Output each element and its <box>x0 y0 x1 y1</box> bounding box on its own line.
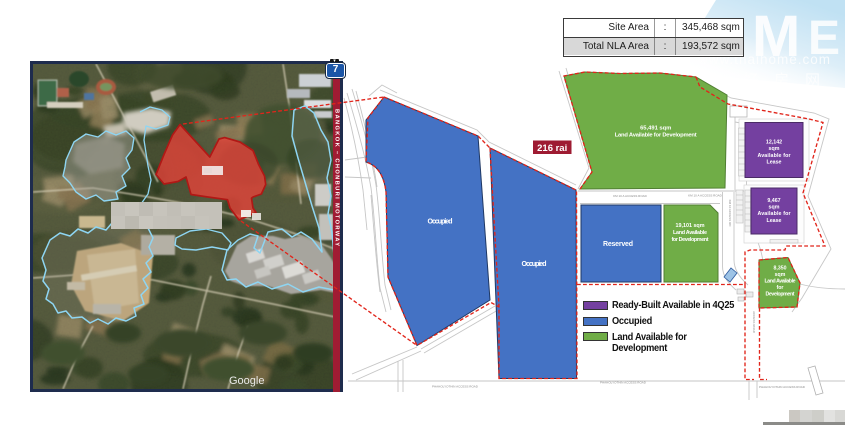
svg-text:Occupied: Occupied <box>428 219 453 226</box>
svg-text:sqm: sqm <box>769 205 780 211</box>
svg-text:KM 10 ACCESS RD: KM 10 ACCESS RD <box>728 200 732 228</box>
svg-text:PHAHOLYOTHIN ACCESS ROAD: PHAHOLYOTHIN ACCESS ROAD <box>432 385 479 389</box>
svg-text:Land Available: Land Available <box>673 230 707 236</box>
svg-text:65,491 sqm: 65,491 sqm <box>640 126 671 132</box>
svg-text:ACCESS ROAD: ACCESS ROAD <box>752 311 756 334</box>
svg-text:Reserved: Reserved <box>603 241 633 248</box>
svg-text:国好房网: 国好房网 <box>712 72 836 89</box>
svg-text:Development: Development <box>766 292 795 298</box>
svg-text:Occupied: Occupied <box>522 261 547 268</box>
svg-text:sqm: sqm <box>775 272 786 278</box>
svg-text:for Development: for Development <box>672 237 709 243</box>
svg-text:KM 10 A ACCESS ROAD: KM 10 A ACCESS ROAD <box>688 194 723 198</box>
svg-text:KM 10 A ACCESS ROAD: KM 10 A ACCESS ROAD <box>613 194 648 198</box>
svg-text:PHAHOLYOTHIN ACCESS ROAD: PHAHOLYOTHIN ACCESS ROAD <box>759 385 806 389</box>
svg-text:Available for: Available for <box>758 153 791 159</box>
svg-text:Land Available for Development: Land Available for Development <box>615 133 697 139</box>
svg-text:PHAHOLYOTHIN ACCESS ROAD: PHAHOLYOTHIN ACCESS ROAD <box>600 381 647 385</box>
svg-text:sqm: sqm <box>769 146 780 152</box>
svg-text:for: for <box>777 285 784 291</box>
svg-text:Lease: Lease <box>766 218 781 224</box>
svg-text:Land Available: Land Available <box>765 279 796 285</box>
svg-text:Lease: Lease <box>766 159 781 165</box>
svg-text:Available for: Available for <box>758 211 791 217</box>
svg-text:8,350: 8,350 <box>774 266 787 272</box>
svg-text:9,467: 9,467 <box>767 198 780 204</box>
svg-text:19,101 sqm: 19,101 sqm <box>675 223 704 229</box>
svg-text:216 rai: 216 rai <box>537 143 567 154</box>
svg-text:12,142: 12,142 <box>766 140 782 146</box>
